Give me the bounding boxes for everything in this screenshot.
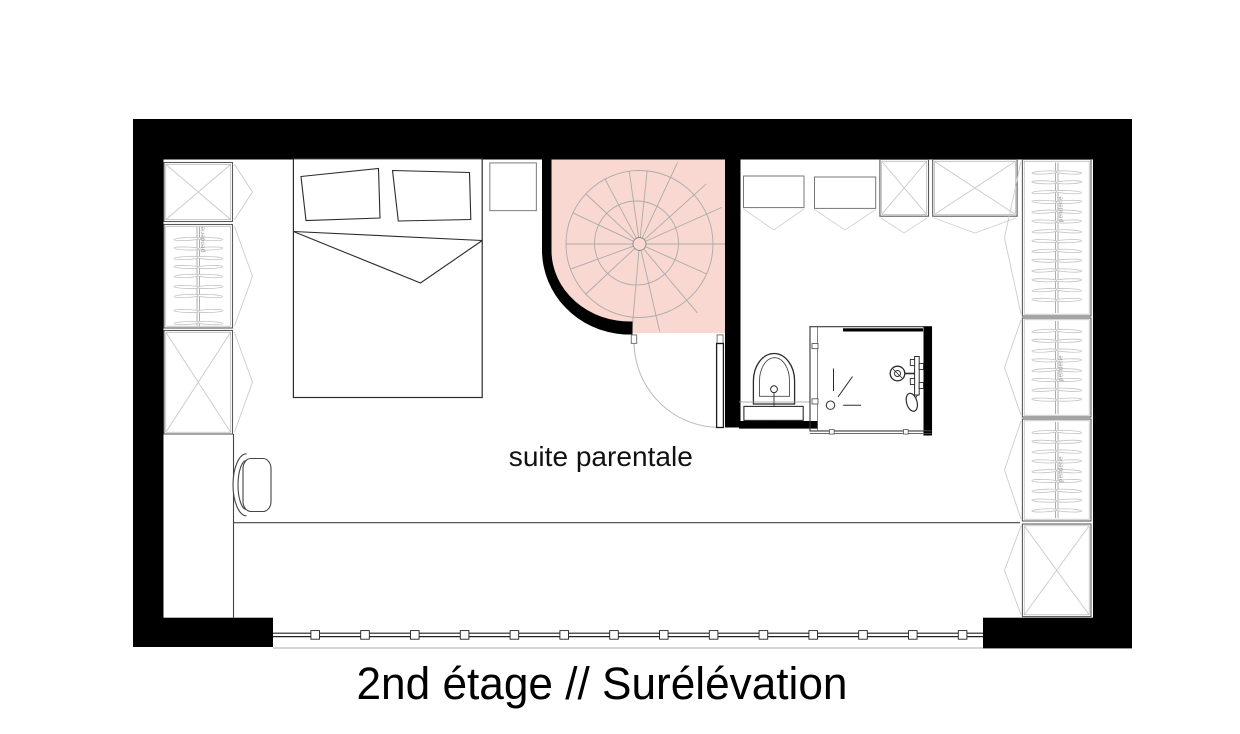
svg-text:penderie: penderie: [1059, 196, 1065, 222]
svg-text:penderie: penderie: [1059, 355, 1065, 381]
svg-text:penderie: penderie: [1059, 456, 1065, 482]
svg-text:penderie: penderie: [201, 226, 207, 252]
svg-text:2nd étage // Surélévation: 2nd étage // Surélévation: [357, 658, 848, 709]
svg-text:suite parentale: suite parentale: [509, 441, 693, 472]
